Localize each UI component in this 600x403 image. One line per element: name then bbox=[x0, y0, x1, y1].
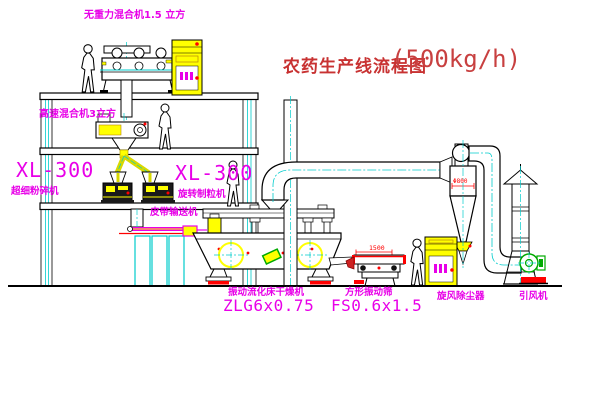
label-cyclone: 旋风除尘器 bbox=[437, 292, 485, 302]
label-mill-name: 超细粉碎机 bbox=[11, 187, 59, 197]
fluid-bed-dryer bbox=[183, 205, 352, 285]
cad-canvas: 农药生产线流程图 (500kg/h) 无重力混合机1.5 立方 高速混合机3立方… bbox=[0, 0, 600, 403]
label-granulator-model: XL-300 bbox=[175, 163, 253, 183]
granulator-xl300 bbox=[141, 183, 175, 203]
draft-fan bbox=[518, 252, 548, 284]
mill-xl300 bbox=[101, 183, 134, 203]
person-middle-floor bbox=[159, 104, 171, 149]
dimension-screen-width: 1500 bbox=[369, 245, 385, 252]
label-fan: 引风机 bbox=[519, 292, 548, 302]
label-high-speed-mixer: 高速混合机3立方 bbox=[39, 110, 116, 120]
diagram-title-capacity: (500kg/h) bbox=[391, 45, 521, 73]
dimension-cyclone-dia: Φ800 bbox=[453, 179, 467, 185]
support-panels bbox=[135, 236, 184, 286]
label-gravity-mixer: 无重力混合机1.5 立方 bbox=[84, 11, 185, 21]
label-dryer-model: ZLG6x0.75 bbox=[223, 298, 314, 314]
label-mill-model: XL-300 bbox=[16, 160, 94, 180]
control-cabinet-top bbox=[172, 40, 202, 95]
label-belt-conveyor: 皮带输送机 bbox=[150, 208, 198, 218]
label-screen-model: FS0.6x1.5 bbox=[331, 298, 422, 314]
label-granulator-name: 旋转制粒机 bbox=[178, 190, 226, 200]
control-cabinet-right bbox=[425, 237, 457, 286]
vibrating-screen bbox=[346, 250, 406, 287]
person-ground bbox=[411, 239, 423, 285]
support-column bbox=[284, 96, 297, 286]
person-top-floor bbox=[82, 45, 95, 92]
